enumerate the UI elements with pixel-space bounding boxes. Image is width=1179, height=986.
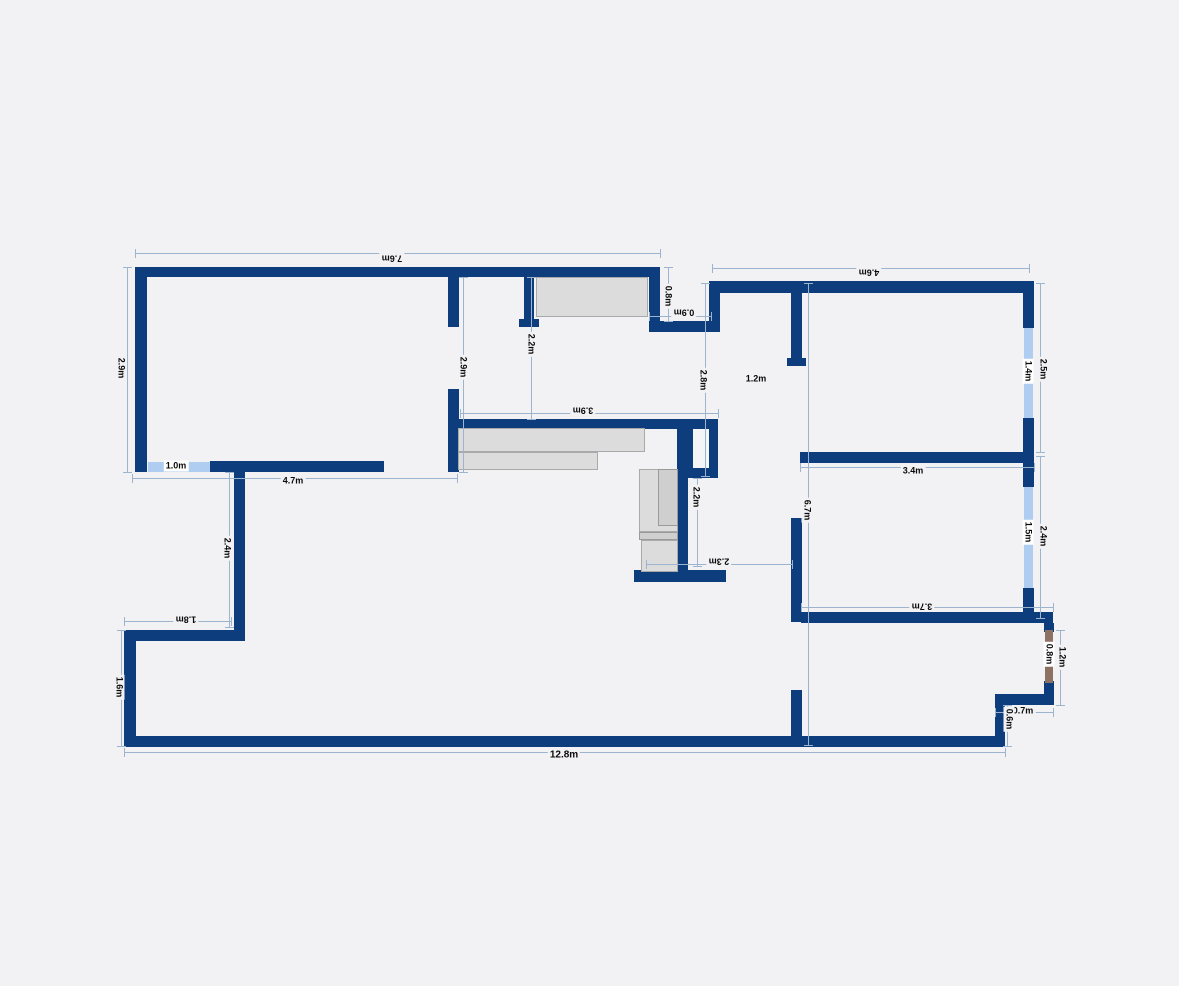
hall-right-wall-upper <box>791 288 802 366</box>
dimension-tick <box>124 617 125 626</box>
kitchen-counter-lower <box>458 452 598 470</box>
dimension-tick <box>701 476 710 477</box>
kitchen-counter-upper <box>458 428 645 452</box>
dimension-tick <box>527 419 536 420</box>
dimension-label: 4.6m <box>857 267 882 278</box>
dimension-tick <box>1029 264 1030 273</box>
dimension-tick <box>712 264 713 273</box>
dimension-tick <box>459 472 468 473</box>
dimension-label: 1.2m <box>1057 645 1068 670</box>
dimension-line <box>127 267 128 472</box>
dimension-tick <box>117 630 126 631</box>
dimension-tick <box>1003 746 1012 747</box>
dimension-label: 2.8m <box>698 368 709 393</box>
dimension-tick <box>459 277 468 278</box>
dimension-label: 1.4m <box>1023 359 1034 384</box>
dimension-tick <box>1053 708 1054 717</box>
dimension-tick <box>117 746 126 747</box>
dimension-label: 3.9m <box>571 405 596 416</box>
dimension-tick <box>457 474 458 483</box>
dimension-label: 1.6m <box>114 675 125 700</box>
left-lower-exterior-wall <box>124 630 136 747</box>
dimension-tick <box>718 409 719 418</box>
dimension-tick <box>1056 705 1065 706</box>
dimension-tick <box>1034 463 1035 472</box>
dimension-label: 2.2m <box>691 485 702 510</box>
dimension-label: 2.4m <box>222 536 233 561</box>
dimension-label: 0.9m <box>672 307 697 318</box>
living-left-wall <box>135 267 147 472</box>
dimension-tick <box>792 560 793 569</box>
dimension-tick <box>1056 630 1065 631</box>
dimension-tick <box>664 267 673 268</box>
dimension-label: 7.6m <box>380 253 405 264</box>
dimension-tick <box>660 249 661 258</box>
dimension-tick <box>804 745 813 746</box>
dimension-label: 1.5m <box>1023 520 1034 545</box>
dimension-tick <box>1053 603 1054 612</box>
right-wing-top-wall <box>709 281 1034 293</box>
dimension-label: 1.2m <box>744 374 769 385</box>
floorplan-canvas: 7.6m2.9m4.6m0.8m0.9m2.9m2.2m2.8m1.2m1.4m… <box>0 0 1179 986</box>
hall-stub-b-foot <box>519 319 539 327</box>
dimension-label: 3.7m <box>910 601 935 612</box>
dimension-tick <box>124 748 125 757</box>
dimension-tick <box>231 617 232 626</box>
dimension-label: 2.4m <box>1038 524 1049 549</box>
dimension-label: 12.8m <box>548 750 580 761</box>
dimension-tick <box>711 312 712 321</box>
hall-stub-a <box>448 277 459 327</box>
dimension-tick <box>527 277 536 278</box>
dimension-tick <box>804 283 813 284</box>
dimension-tick <box>123 472 132 473</box>
duct-shaft-core <box>693 429 709 468</box>
dimension-label: 6.7m <box>802 498 813 523</box>
dimension-label: 2.2m <box>526 332 537 357</box>
dimension-tick <box>649 312 650 321</box>
dimension-tick <box>225 472 234 473</box>
dimension-tick <box>1036 456 1045 457</box>
kitchen-appliance-strip <box>639 532 678 540</box>
dimension-tick <box>995 708 996 717</box>
dimension-tick <box>693 478 702 479</box>
dimension-tick <box>123 267 132 268</box>
dimension-tick <box>132 474 133 483</box>
dimension-label: 4.7m <box>281 476 306 487</box>
dimension-tick <box>1036 283 1045 284</box>
dimension-label: 1.0m <box>164 461 189 472</box>
dimension-label: 3.4m <box>901 466 926 477</box>
living-top-wall <box>135 267 660 277</box>
dimension-tick <box>225 627 234 628</box>
dimension-label: 2.9m <box>458 355 469 380</box>
dimension-label: 2.5m <box>1038 357 1049 382</box>
bedroom2-bottom-wall <box>801 612 1053 623</box>
dimension-label: 0.6m <box>1004 707 1015 732</box>
dimension-tick <box>1036 618 1045 619</box>
dimension-label: 1.8m <box>174 614 199 625</box>
bedroom1-bottom-wall <box>800 452 1034 463</box>
right-exterior-wall-1 <box>1023 281 1034 328</box>
left-step-wall <box>124 630 245 641</box>
dimension-tick <box>664 321 673 322</box>
dimension-tick <box>646 560 647 569</box>
dimension-tick <box>701 283 710 284</box>
kitchen-appliance-tall-inner <box>658 469 678 526</box>
dimension-tick <box>1005 748 1006 757</box>
bottom-exterior-wall <box>124 736 1005 747</box>
dimension-tick <box>1036 452 1045 453</box>
mid-left-partition <box>234 461 245 641</box>
dimension-label: 2.9m <box>116 356 127 381</box>
dimension-tick <box>801 603 802 612</box>
dimension-tick <box>800 463 801 472</box>
dimension-label: 0.8m <box>1044 642 1055 667</box>
hall-right-wall-upper-foot <box>787 358 806 366</box>
entry-wardrobe <box>536 277 648 317</box>
hall-bottom-stub <box>791 690 802 736</box>
dimension-label: 2.3m <box>707 556 732 567</box>
dimension-label: 0.8m <box>663 284 674 309</box>
dimension-tick <box>693 566 702 567</box>
dimension-tick <box>460 409 461 418</box>
dimension-tick <box>135 249 136 258</box>
